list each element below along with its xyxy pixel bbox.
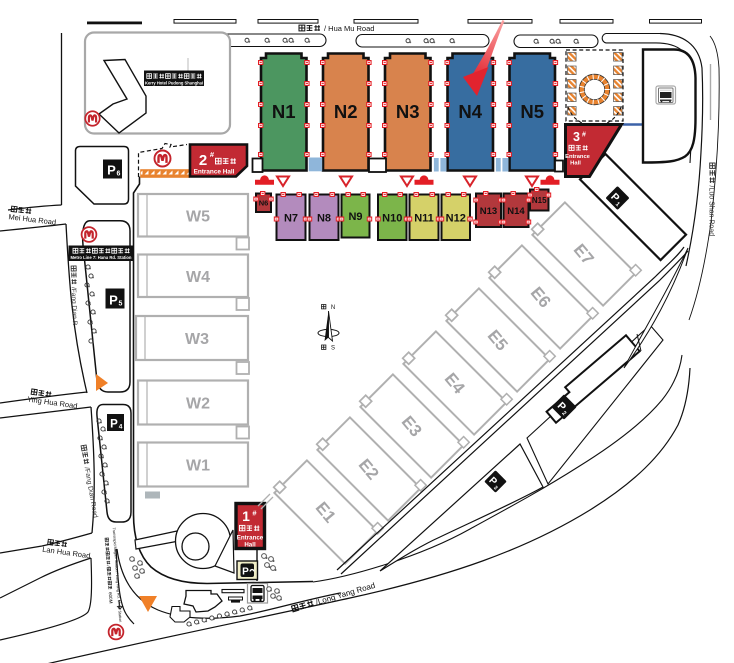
svg-text:Ying Hua Road: Ying Hua Road [27,395,78,411]
svg-text:P: P [107,163,116,178]
svg-text:N12: N12 [446,212,466,224]
svg-text:N10: N10 [382,212,402,224]
svg-text:P: P [109,293,118,308]
svg-text:#: # [582,132,586,139]
svg-text:3: 3 [573,130,580,144]
svg-text:/Luo Shan Road: /Luo Shan Road [708,186,715,237]
svg-text:/Fang Dian Road: /Fang Dian Road [83,467,99,519]
svg-text:N6: N6 [259,199,269,208]
svg-text:Lan Hua Road: Lan Hua Road [42,545,91,561]
svg-text:Hall: Hall [570,161,581,167]
svg-text:N7: N7 [284,212,298,224]
svg-text:N15: N15 [532,196,547,205]
svg-text:Mei Hua Road: Mei Hua Road [8,212,57,227]
svg-text:Entrance: Entrance [565,154,591,160]
svg-text:/Fang Dian R: /Fang Dian R [70,287,78,326]
svg-text:W4: W4 [186,269,210,286]
svg-text:N3: N3 [396,101,420,122]
svg-text:Hall: Hall [244,542,256,549]
svg-text:4: 4 [119,424,123,431]
svg-text:5: 5 [119,301,123,308]
svg-text:N9: N9 [348,211,362,223]
svg-text:S: S [331,346,335,352]
svg-text:Entrance Hall: Entrance Hall [194,169,235,176]
svg-text:Entrance: Entrance [237,535,264,542]
svg-text:N5: N5 [520,101,544,122]
svg-text:W5: W5 [186,208,210,225]
svg-text:Kerry Hotel Pudong Shanghai: Kerry Hotel Pudong Shanghai [145,81,203,86]
svg-text:600M: 600M [108,592,114,604]
svg-text:N14: N14 [507,206,525,217]
svg-text:W3: W3 [185,331,209,348]
svg-text:N11: N11 [414,212,434,224]
svg-text:P: P [242,567,249,578]
svg-text:N13: N13 [480,206,497,217]
svg-text:/ Hua Mu Road: / Hua Mu Road [324,24,374,33]
svg-text:6: 6 [117,171,121,178]
svg-text:N4: N4 [458,101,482,122]
svg-text:P: P [110,419,118,431]
svg-text:N1: N1 [272,101,296,122]
svg-text:W2: W2 [186,396,210,413]
svg-text:Metro Line 7: Hanu Rd. Station: Metro Line 7: Hanu Rd. Station [71,255,132,260]
svg-text:2: 2 [199,152,207,169]
svg-text:1: 1 [242,508,250,524]
svg-text:W1: W1 [186,458,210,475]
svg-text:N8: N8 [317,212,331,224]
svg-text:N: N [331,305,335,311]
svg-text:N2: N2 [334,101,358,122]
